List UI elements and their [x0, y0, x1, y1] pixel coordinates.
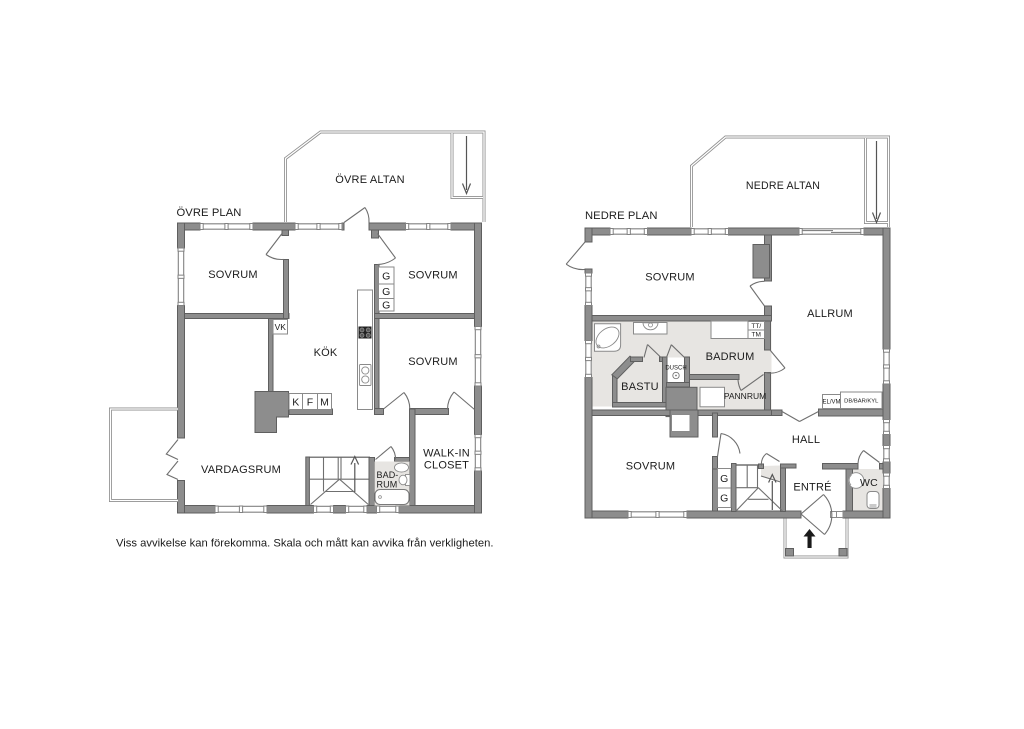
svg-text:K: K [292, 396, 299, 408]
svg-text:G: G [720, 473, 728, 485]
svg-text:VK: VK [275, 322, 287, 332]
svg-text:G: G [382, 300, 390, 312]
svg-text:F: F [307, 396, 313, 408]
svg-text:G: G [720, 493, 728, 505]
svg-text:BADRUM: BADRUM [706, 351, 755, 363]
svg-text:NEDRE ALTAN: NEDRE ALTAN [746, 180, 820, 192]
svg-text:SOVRUM: SOVRUM [645, 272, 694, 284]
svg-text:NEDRE PLAN: NEDRE PLAN [585, 210, 658, 222]
svg-text:DUSCH: DUSCH [665, 366, 686, 372]
svg-text:SOVRUM: SOVRUM [408, 356, 457, 368]
svg-text:RUM: RUM [377, 480, 398, 490]
svg-text:SOVRUM: SOVRUM [208, 269, 257, 281]
svg-text:SOVRUM: SOVRUM [408, 270, 457, 282]
svg-text:VARDAGSRUM: VARDAGSRUM [201, 464, 281, 476]
svg-text:ALLRUM: ALLRUM [807, 308, 853, 320]
svg-text:M: M [320, 396, 329, 408]
svg-text:WC: WC [860, 477, 878, 489]
svg-text:G: G [382, 270, 390, 282]
svg-text:ÖVRE ALTAN: ÖVRE ALTAN [335, 174, 404, 186]
svg-text:DB/BAR/KYL: DB/BAR/KYL [844, 398, 879, 404]
svg-text:Viss avvikelse kan förekomma.: Viss avvikelse kan förekomma. Skala och … [116, 538, 493, 550]
svg-text:TM: TM [752, 332, 761, 339]
svg-text:CLOSET: CLOSET [424, 460, 469, 472]
svg-text:BASTU: BASTU [621, 381, 659, 393]
svg-text:BAD-: BAD- [377, 470, 399, 480]
svg-text:ENTRÉ: ENTRÉ [793, 481, 831, 494]
svg-text:WALK-IN: WALK-IN [423, 448, 470, 460]
svg-text:ÖVRE PLAN: ÖVRE PLAN [177, 207, 242, 219]
svg-text:TT/: TT/ [751, 323, 761, 330]
svg-text:EL/VM: EL/VM [822, 400, 840, 406]
svg-text:G: G [382, 286, 390, 298]
svg-text:HALL: HALL [792, 434, 820, 446]
svg-text:KÖK: KÖK [314, 347, 338, 359]
svg-text:PANNRUM: PANNRUM [724, 391, 766, 401]
svg-text:SOVRUM: SOVRUM [626, 461, 675, 473]
